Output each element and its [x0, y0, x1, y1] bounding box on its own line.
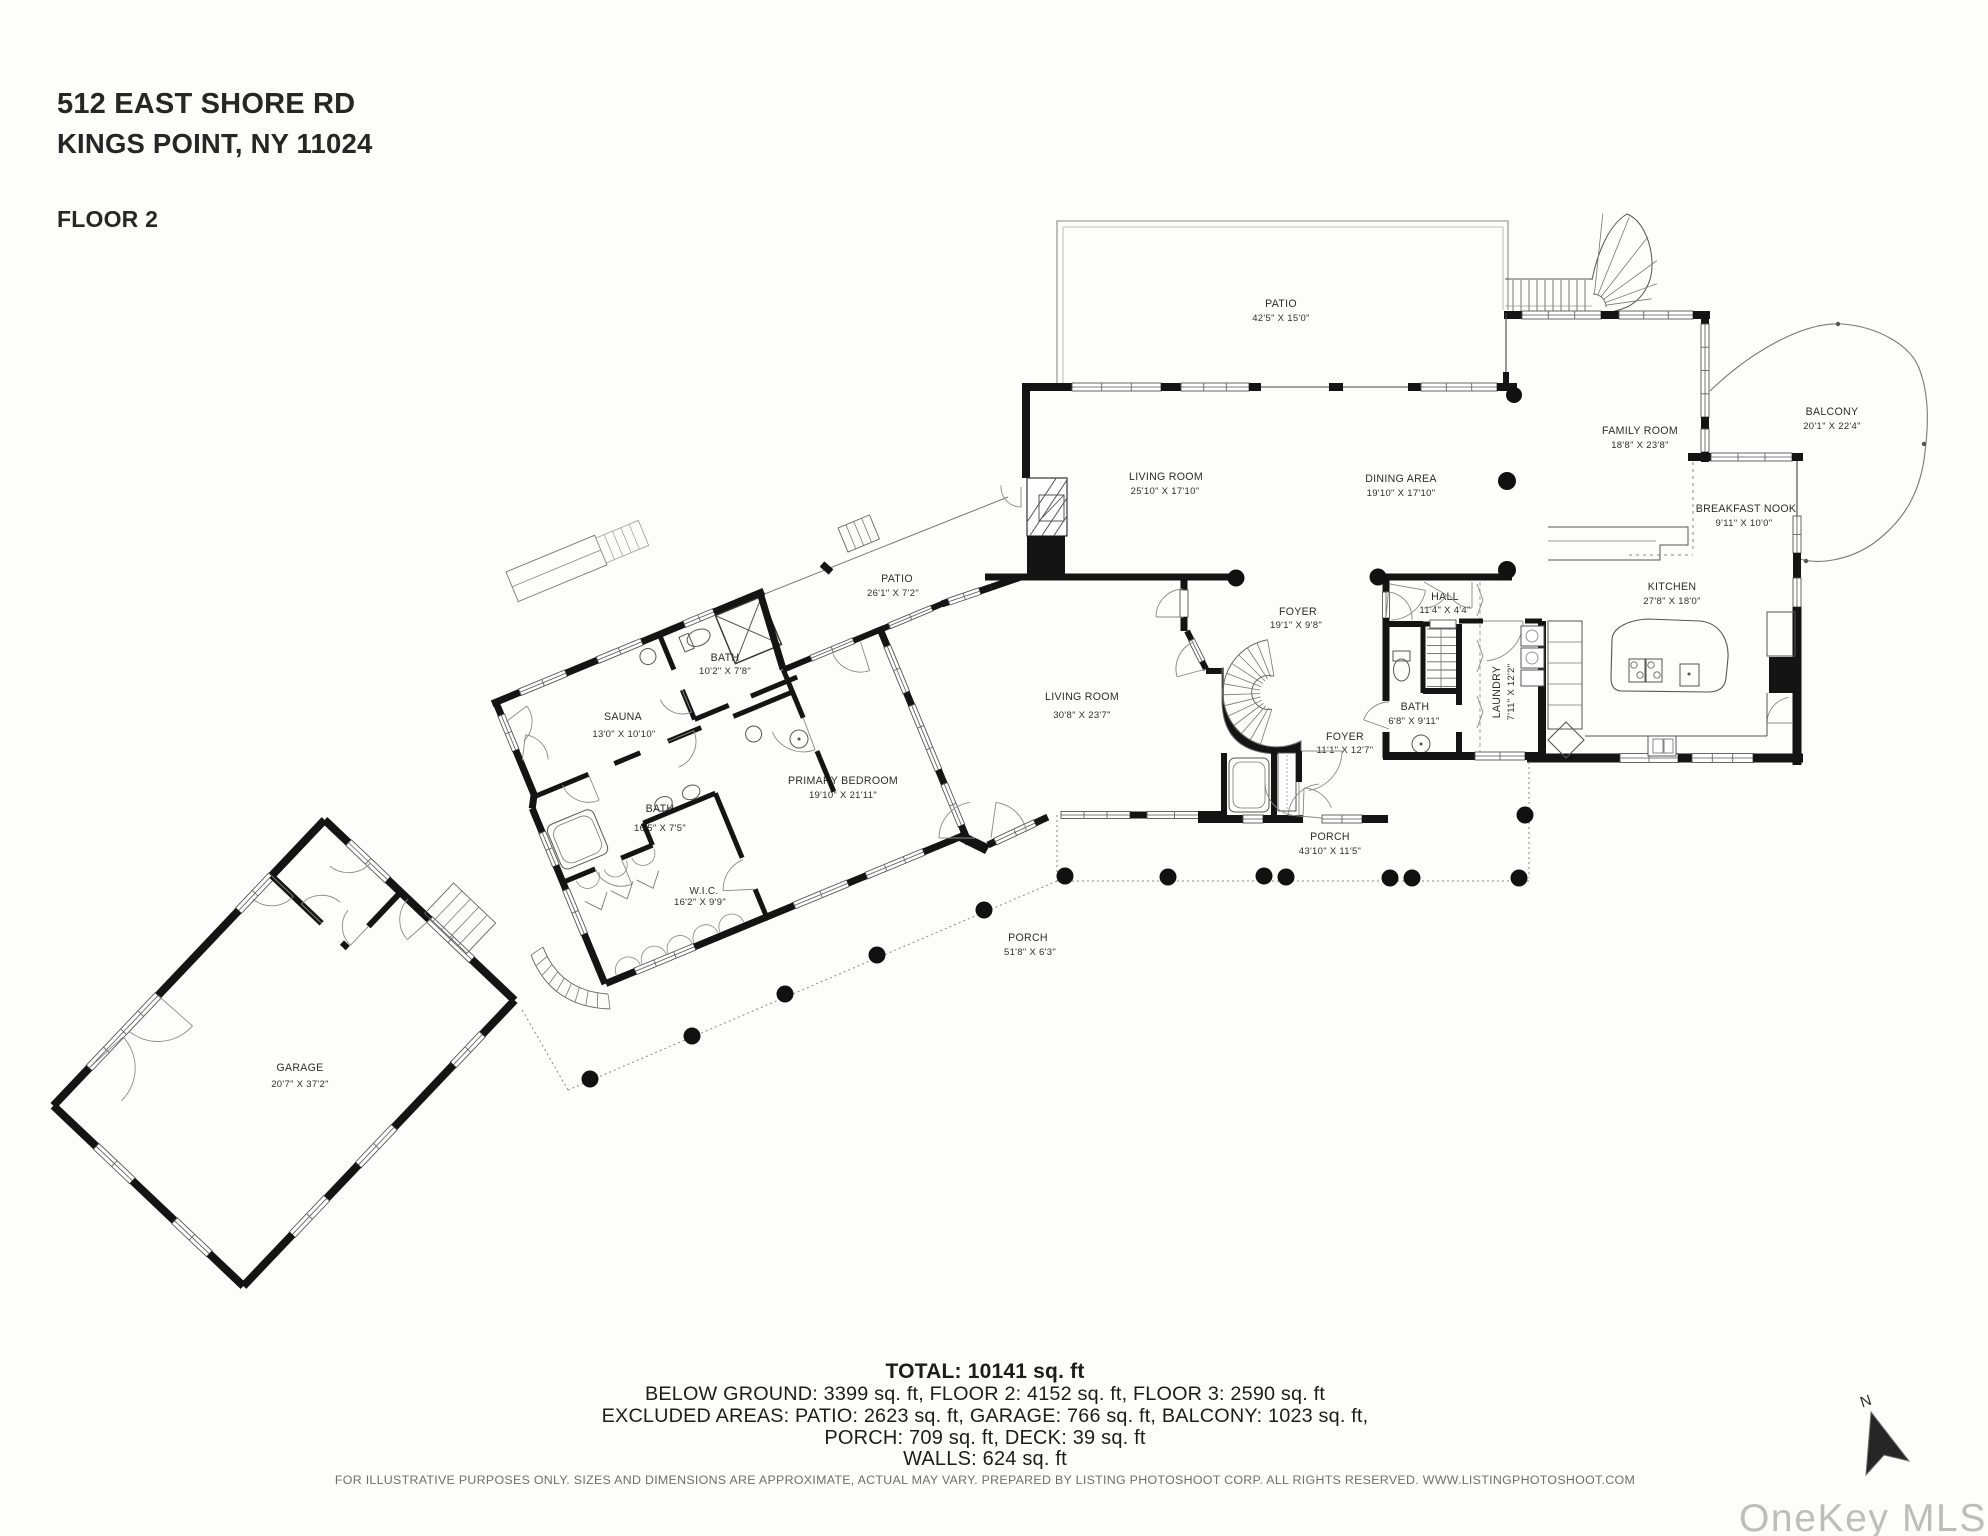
svg-text:KITCHEN: KITCHEN	[1648, 581, 1697, 593]
svg-text:30'8" X 23'7": 30'8" X 23'7"	[1053, 710, 1111, 721]
svg-text:WALLS: 624 sq. ft: WALLS: 624 sq. ft	[903, 1448, 1067, 1470]
svg-text:19'10" X 21'11": 19'10" X 21'11"	[809, 790, 877, 801]
svg-text:6'8" X 9'11": 6'8" X 9'11"	[1388, 716, 1439, 727]
svg-text:13'0" X 10'10": 13'0" X 10'10"	[592, 729, 655, 740]
svg-text:BELOW GROUND: 3399 sq. ft, FLO: BELOW GROUND: 3399 sq. ft, FLOOR 2: 4152…	[645, 1383, 1325, 1405]
svg-text:LAUNDRY: LAUNDRY	[1491, 666, 1503, 719]
svg-text:GARAGE: GARAGE	[276, 1062, 323, 1074]
svg-text:PORCH: PORCH	[1008, 932, 1048, 944]
svg-text:SAUNA: SAUNA	[604, 711, 643, 723]
svg-text:PORCH: PORCH	[1310, 831, 1350, 843]
svg-text:BALCONY: BALCONY	[1806, 406, 1859, 418]
svg-text:W.I.C.: W.I.C.	[689, 886, 718, 897]
svg-text:19'1" X 9'8": 19'1" X 9'8"	[1270, 620, 1322, 631]
svg-text:26'1" X 7'2": 26'1" X 7'2"	[867, 588, 919, 599]
svg-text:512 EAST SHORE RD: 512 EAST SHORE RD	[57, 88, 355, 120]
svg-text:7'11" X 12'2": 7'11" X 12'2"	[1506, 664, 1517, 721]
svg-text:18'8" X 23'8": 18'8" X 23'8"	[1611, 440, 1669, 451]
svg-text:FOYER: FOYER	[1326, 731, 1364, 743]
svg-text:PORCH: 709 sq. ft, DECK: 39 sq: PORCH: 709 sq. ft, DECK: 39 sq. ft	[824, 1427, 1146, 1449]
svg-text:20'7" X 37'2": 20'7" X 37'2"	[271, 1079, 329, 1090]
svg-text:BATH: BATH	[711, 652, 740, 664]
svg-text:OneKey MLS: OneKey MLS	[1739, 1497, 1987, 1536]
svg-text:42'5" X 15'0": 42'5" X 15'0"	[1252, 313, 1310, 324]
svg-text:10'2" X 7'8": 10'2" X 7'8"	[699, 666, 751, 677]
svg-text:25'10" X 17'10": 25'10" X 17'10"	[1131, 486, 1200, 497]
svg-text:9'11" X 10'0": 9'11" X 10'0"	[1716, 518, 1773, 529]
svg-text:27'8" X 18'0": 27'8" X 18'0"	[1643, 596, 1701, 607]
svg-text:FOR ILLUSTRATIVE PURPOSES ONLY: FOR ILLUSTRATIVE PURPOSES ONLY. SIZES AN…	[335, 1473, 1635, 1487]
svg-text:TOTAL: 10141 sq. ft: TOTAL: 10141 sq. ft	[885, 1360, 1084, 1383]
svg-text:FAMILY ROOM: FAMILY ROOM	[1602, 425, 1678, 437]
svg-text:KINGS POINT, NY 11024: KINGS POINT, NY 11024	[57, 128, 373, 159]
svg-text:FLOOR 2: FLOOR 2	[57, 206, 158, 232]
svg-text:EXCLUDED AREAS: PATIO: 2623 sq: EXCLUDED AREAS: PATIO: 2623 sq. ft, GARA…	[602, 1405, 1369, 1427]
svg-text:11'1" X 12'7": 11'1" X 12'7"	[1317, 745, 1374, 756]
svg-text:43'10" X 11'5": 43'10" X 11'5"	[1299, 846, 1361, 857]
svg-text:BATH: BATH	[1401, 701, 1430, 713]
svg-text:LIVING ROOM: LIVING ROOM	[1045, 691, 1119, 703]
svg-text:LIVING ROOM: LIVING ROOM	[1129, 471, 1203, 483]
svg-text:PATIO: PATIO	[1265, 298, 1297, 310]
svg-text:16'2" X 9'9": 16'2" X 9'9"	[674, 897, 726, 908]
svg-text:PATIO: PATIO	[881, 573, 913, 585]
svg-text:PRIMARY BEDROOM: PRIMARY BEDROOM	[788, 775, 898, 787]
svg-text:FOYER: FOYER	[1279, 606, 1317, 618]
svg-text:19'10" X 17'10": 19'10" X 17'10"	[1367, 488, 1436, 499]
svg-text:DINING AREA: DINING AREA	[1365, 473, 1437, 485]
svg-text:BREAKFAST NOOK: BREAKFAST NOOK	[1696, 503, 1797, 515]
svg-text:51'8" X 6'3": 51'8" X 6'3"	[1004, 947, 1056, 958]
svg-text:20'1" X 22'4": 20'1" X 22'4"	[1803, 421, 1861, 432]
